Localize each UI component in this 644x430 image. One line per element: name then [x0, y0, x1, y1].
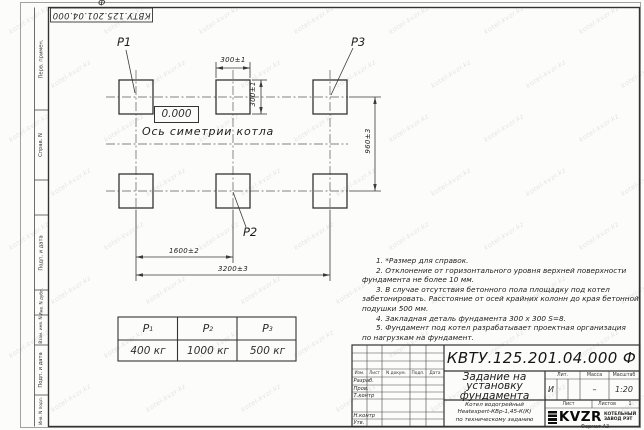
margin-label-podp-data-2: Подп. и дата — [35, 345, 47, 395]
lit-label: Лит. — [545, 372, 580, 379]
sheet-label: Лист — [545, 401, 592, 408]
scale-value: 1:20 — [609, 379, 639, 400]
margin-label-inv-podl: Инв. N подл. — [35, 395, 47, 427]
margin-label-vzam-inv: Взам. инв. N — [35, 315, 47, 345]
note-line: подушки 500 мм. — [362, 304, 640, 314]
signature-row-nkontr: Н.контр — [354, 413, 376, 420]
margin-label-inv-dubl: Инв. N дубл. — [35, 290, 47, 315]
drawing-sheet: kotel-kvzr.kzkotel-kvzr.kzkotel-kvzr.kzk… — [0, 0, 644, 430]
change-header-list: Лист — [367, 370, 382, 377]
mass-label: Масса — [580, 372, 609, 379]
note-line: 4. Закладная деталь фундамента 300 x 300… — [362, 314, 640, 324]
margin-label-perv-primen: Перв. примен. — [35, 7, 47, 110]
note-line: 2. Отклонение от горизонтального уровня … — [362, 266, 640, 276]
product-description: Котел водогрейный Heatexpert-КВр-1,45-К(… — [444, 402, 545, 425]
note-line: забетонировать. Расстояние от осей крайн… — [362, 294, 640, 304]
dimension-overall-width: 3200±3 — [203, 265, 263, 273]
notes-block: 1. *Размер для справок. 2. Отклонение от… — [362, 256, 640, 342]
margin-label-sprav-n: Справ. N — [35, 110, 47, 180]
sheets-label: Листов — [592, 401, 622, 408]
change-header-podp: Подп. — [410, 370, 426, 377]
signature-row-utv: Утв. — [354, 420, 365, 427]
scale-label: Масштаб — [609, 372, 639, 379]
note-line: по нагрузкам на фундамент. — [362, 333, 640, 343]
company-logo: KVZR КОТЕЛЬНЫЙ ЗАВОД РЭТ — [545, 408, 639, 426]
dimension-pad-width: 300±1 — [216, 56, 250, 64]
format-label: Формат А3 — [555, 424, 635, 430]
note-line: 5. Фундамент под котел разрабатывает про… — [362, 323, 640, 333]
dimension-column-spacing: 1600±2 — [154, 247, 214, 255]
mass-value: – — [580, 379, 609, 400]
signature-row-prov: Пров. — [354, 386, 369, 393]
logo-text: KVZR — [559, 409, 602, 425]
note-line: 3. В случае отсутствия бетонного пола пл… — [362, 285, 640, 295]
company-name: КОТЕЛЬНЫЙ ЗАВОД РЭТ — [604, 412, 636, 422]
lit-value: И — [545, 379, 557, 400]
change-header-docnum: N докум. — [382, 370, 410, 377]
dimension-row-spacing: 960±3 — [364, 121, 372, 161]
point-label-p1: P1 — [117, 35, 131, 49]
change-header-izm: Изм. — [352, 370, 367, 377]
designation-top-rotated: КВТУ.125.201.04.000 Ф — [50, 8, 153, 22]
axis-of-symmetry-label: Ось симетрии котла — [142, 125, 274, 138]
signature-row-razrab: Разраб. — [354, 378, 374, 385]
note-line: 1. *Размер для справок. — [362, 256, 640, 266]
signature-row-tkontr: Т.контр — [354, 393, 375, 400]
point-label-p2: P2 — [243, 225, 257, 239]
elevation-mark: 0.000 — [154, 106, 199, 123]
note-line: фундамента не более 10 мм. — [362, 275, 640, 285]
change-header-data: Дата — [426, 370, 444, 377]
title-block-designation: КВТУ.125.201.04.000 Ф — [444, 347, 639, 369]
point-label-p3: P3 — [351, 35, 365, 49]
dimension-pad-height: 300±1 — [249, 79, 257, 109]
sheets-value: 1 — [622, 401, 638, 408]
load-table: P1 P2 P3 400 кг 1000 кг 500 кг — [118, 317, 297, 362]
boiler-bars-icon — [548, 411, 557, 424]
title-block-doc-title: Задание на установку фундамента — [444, 373, 545, 401]
margin-label-podp-data-1: Подп. и дата — [35, 215, 47, 290]
